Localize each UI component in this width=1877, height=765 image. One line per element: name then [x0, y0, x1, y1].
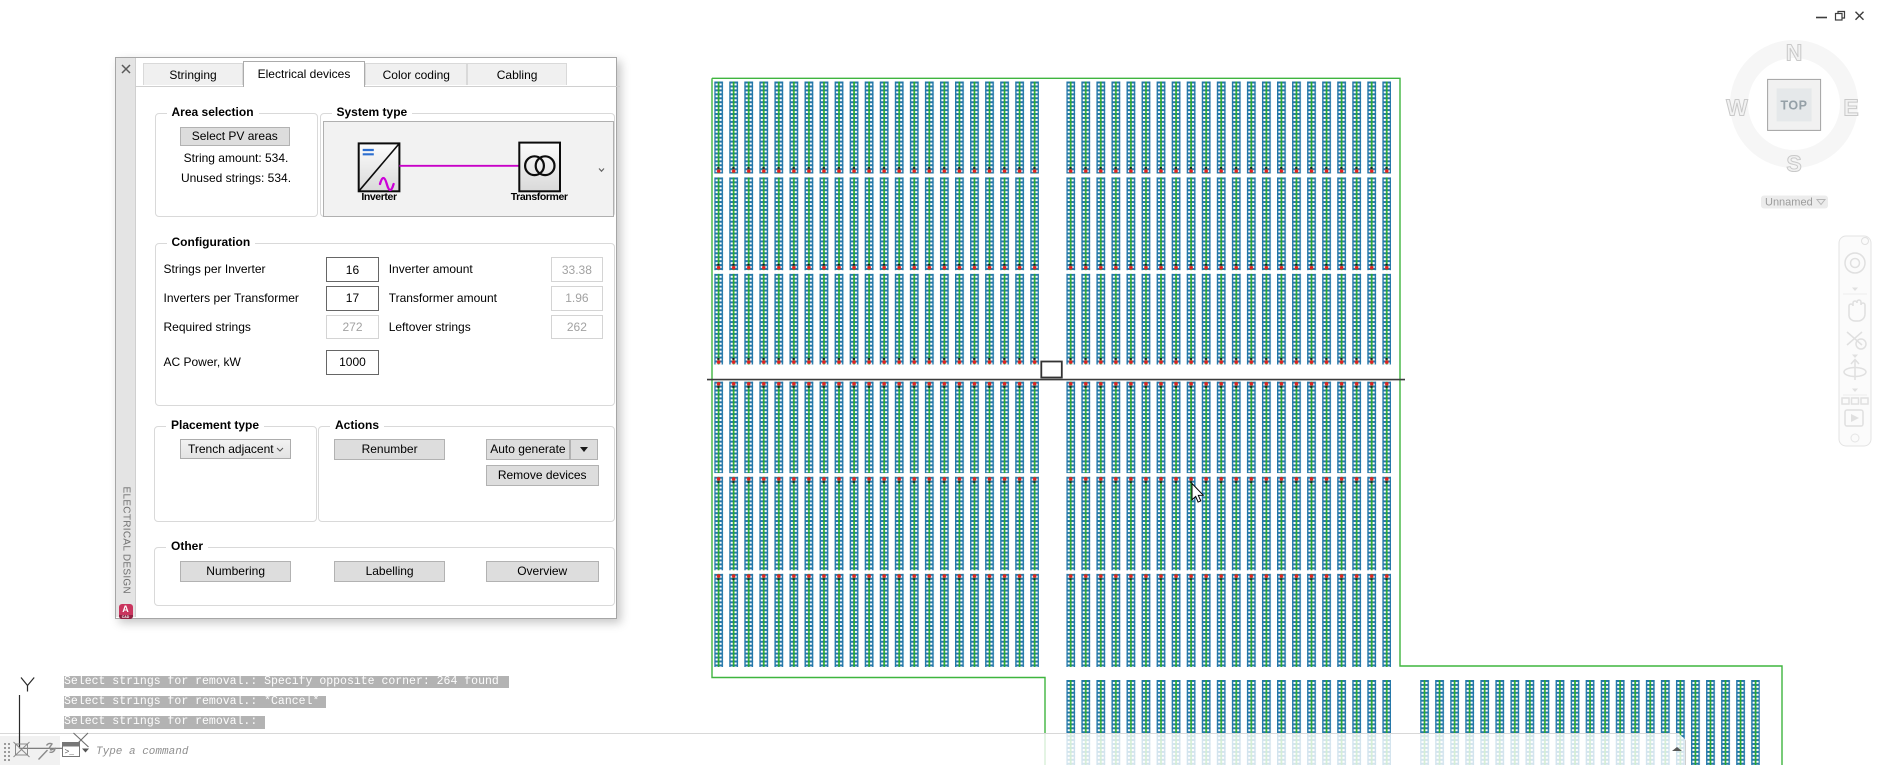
- svg-text:Inverter: Inverter: [361, 191, 397, 203]
- svg-text:>_: >_: [65, 748, 75, 757]
- svg-text:Transformer: Transformer: [510, 191, 567, 203]
